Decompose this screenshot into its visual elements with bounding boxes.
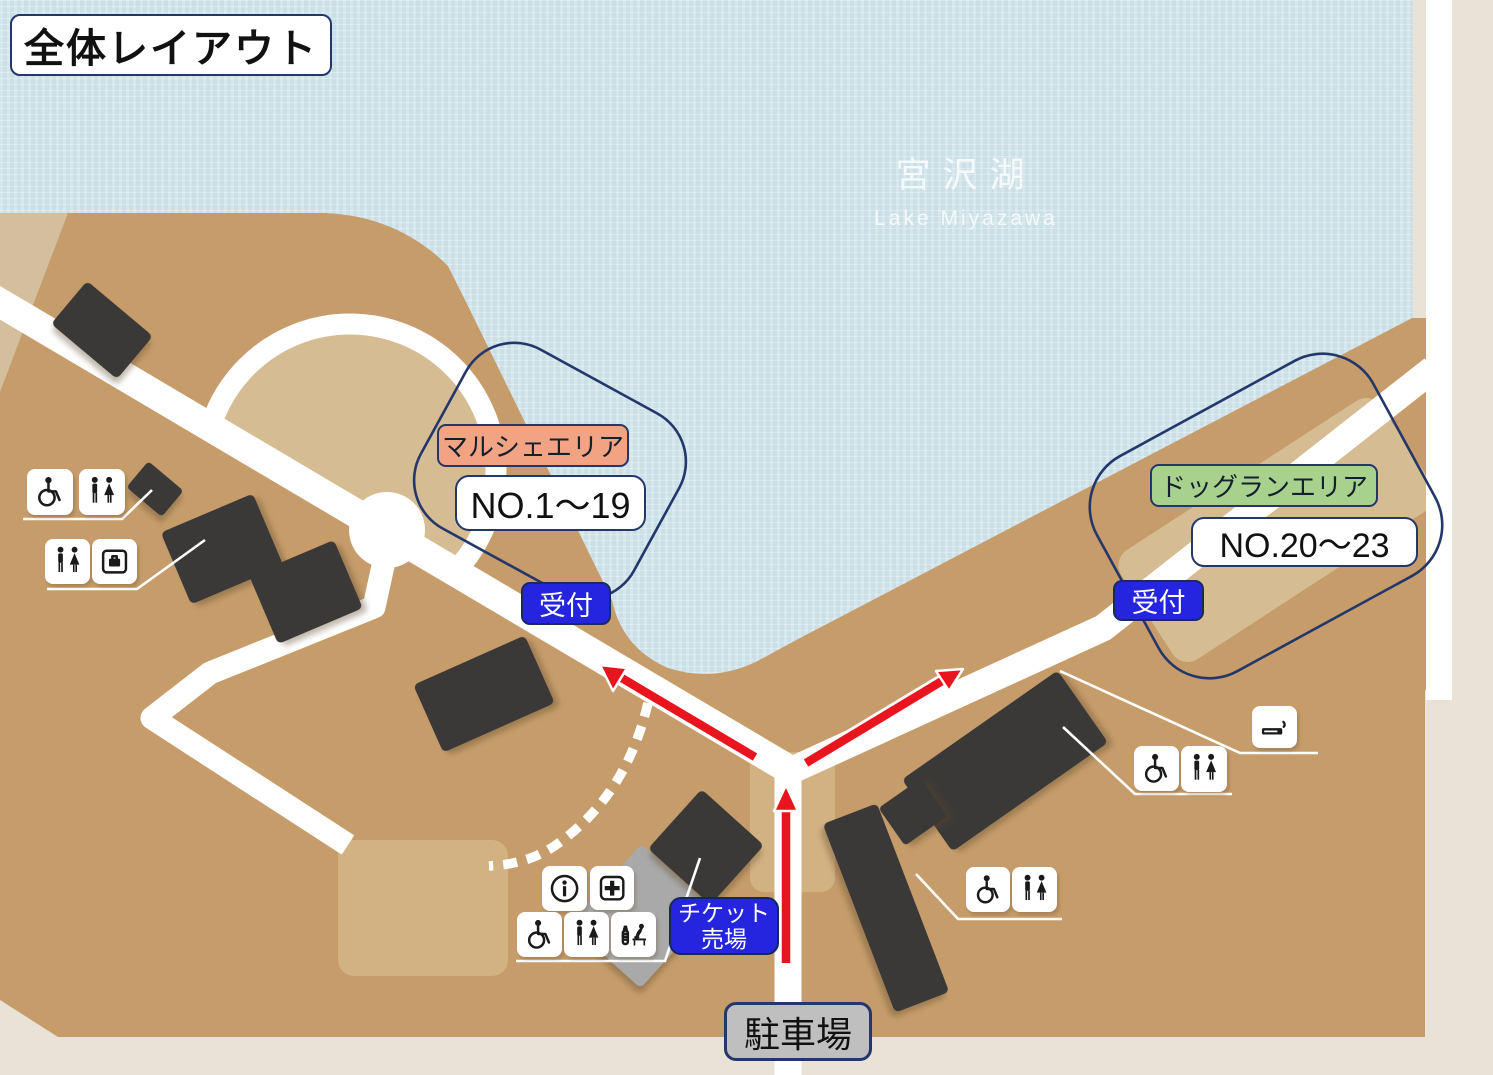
restroom-icon xyxy=(1012,867,1057,912)
restroom-icon xyxy=(564,912,609,957)
parking-label: 駐車場 xyxy=(724,1002,872,1061)
lake-name-english: Lake Miyazawa xyxy=(820,206,1112,232)
smoking-area-icon xyxy=(1252,706,1297,748)
wheelchair-icon xyxy=(27,469,73,515)
marche-reception-label: 受付 xyxy=(521,582,611,625)
wheelchair-icon xyxy=(517,912,562,957)
ticket-office-label: チケット 売場 xyxy=(669,897,779,955)
page-title: 全体レイアウト xyxy=(10,14,332,76)
first-aid-icon xyxy=(590,866,634,910)
marche-area-label: マルシェエリア xyxy=(437,424,629,467)
coin-locker-icon xyxy=(92,539,137,584)
baby-care-icon xyxy=(611,912,656,957)
dogrun-stall-range: NO.20～23 xyxy=(1191,517,1418,567)
ticket-office-line1: チケット xyxy=(678,900,770,926)
dogrun-area-label: ドッグランエリア xyxy=(1150,464,1378,507)
restroom-icon xyxy=(45,539,90,584)
restroom-icon xyxy=(1181,746,1227,792)
marche-stall-range: NO.1～19 xyxy=(455,475,646,531)
information-icon xyxy=(542,866,587,911)
dogrun-reception-label: 受付 xyxy=(1113,580,1204,621)
lake-name: 宮沢湖 xyxy=(850,150,1082,194)
park-layout-map: 全体レイアウト 宮沢湖 Lake Miyazawa マルシェエリア NO.1～1… xyxy=(0,0,1493,1075)
wheelchair-icon xyxy=(1134,746,1179,791)
wheelchair-icon xyxy=(966,867,1010,912)
ticket-office-line2: 売場 xyxy=(701,926,747,952)
road-circle-plaza xyxy=(349,492,425,568)
south-plaza xyxy=(338,840,508,976)
restroom-icon xyxy=(79,469,125,515)
